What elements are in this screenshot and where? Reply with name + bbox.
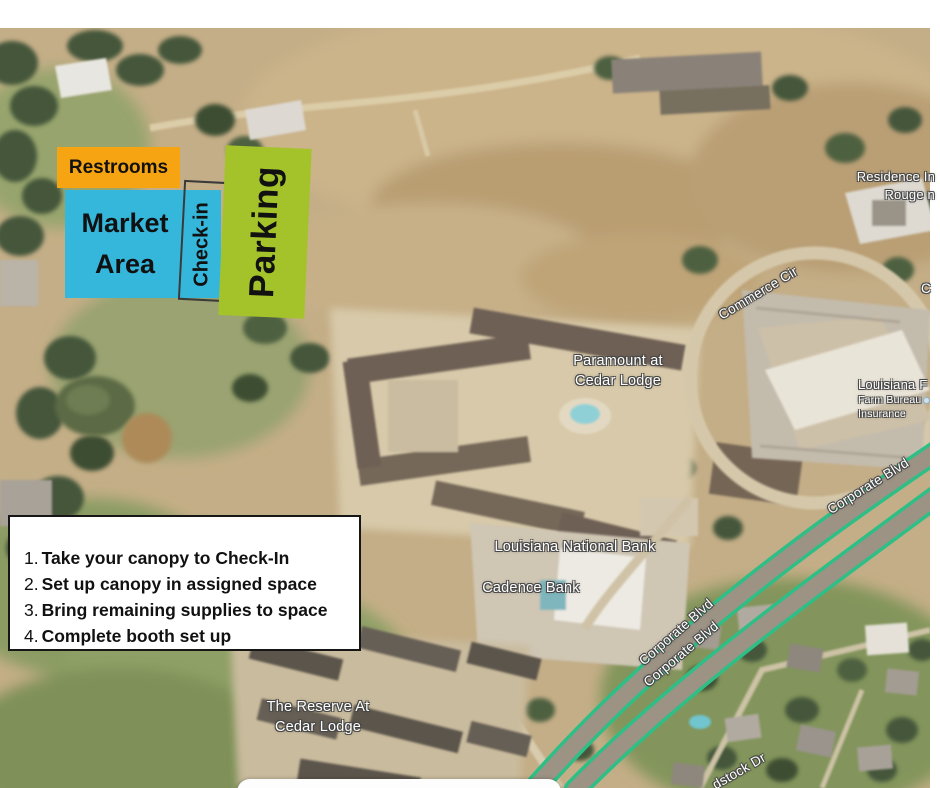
- map-label-paramount: Paramount at Cedar Lodge: [573, 352, 662, 391]
- market-area-label-line2: Area: [95, 249, 155, 280]
- setup-instructions-panel: 1. Take your canopy to Check-In 2. Set u…: [8, 515, 361, 651]
- instruction-item: 1. Take your canopy to Check-In: [24, 545, 349, 571]
- map-label-edge-partial: C: [921, 281, 931, 296]
- parking-label: Parking: [242, 165, 288, 299]
- instruction-item: 2. Set up canopy in assigned space: [24, 571, 349, 597]
- market-area-box: Market Area: [65, 190, 185, 298]
- flyer-page: Paramount at Cedar Lodge Louisiana Natio…: [0, 0, 940, 788]
- satellite-imagery: [0, 28, 930, 788]
- map-label-cadence-bank: Cadence Bank: [482, 580, 580, 596]
- parking-area-box: Parking: [218, 145, 311, 319]
- map-label-residence-inn-partial: Residence In Rouge n: [857, 168, 935, 204]
- map-label-farm-bureau: Louisiana F Farm Bureau Insurance: [858, 377, 930, 421]
- map-label-reserve: The Reserve At Cedar Lodge: [267, 698, 370, 737]
- market-area-label-line1: Market: [81, 208, 168, 239]
- farm-bureau-logo-icon: [923, 397, 930, 404]
- map-label-louisiana-national-bank: Louisiana National Bank: [495, 539, 656, 555]
- bottom-sheet-handle: [237, 779, 561, 788]
- map-canvas: [0, 28, 930, 788]
- instruction-item: 4. Complete booth set up: [24, 623, 349, 649]
- restrooms-area-box: Restrooms: [57, 147, 180, 188]
- instruction-item: 3. Bring remaining supplies to space: [24, 597, 349, 623]
